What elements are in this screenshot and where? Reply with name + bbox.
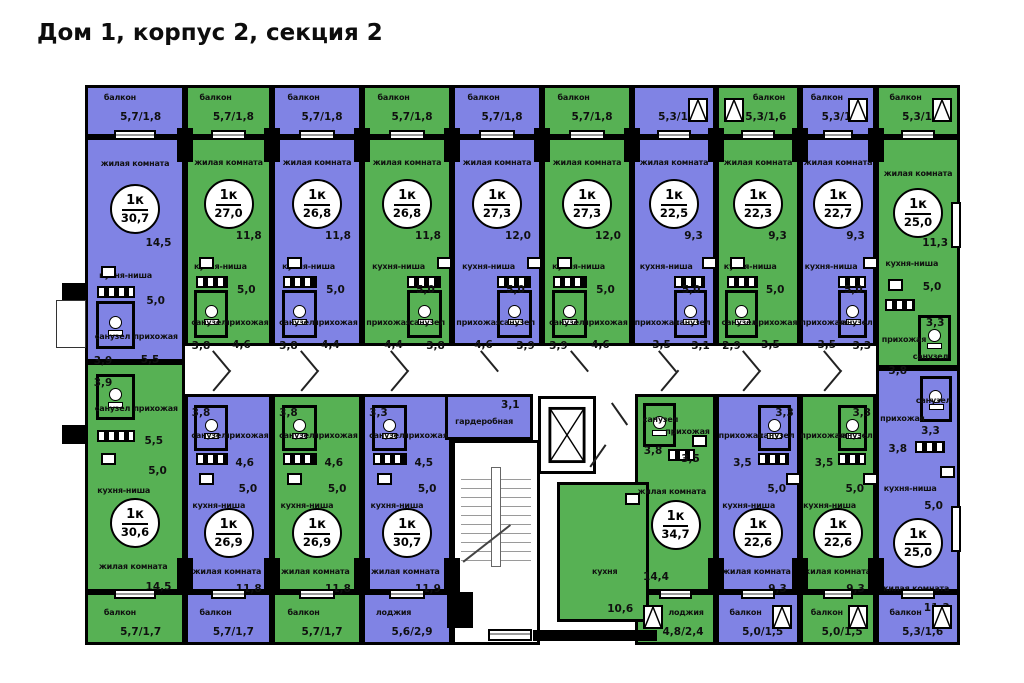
apartment-total-area: 25,0 xyxy=(904,545,932,558)
kitchen-niche-area: 5,0 xyxy=(766,284,785,296)
bathroom-walls xyxy=(282,290,317,338)
kitchen-counter xyxy=(196,453,228,465)
wall-pier xyxy=(354,558,370,594)
bathroom-label: санузел xyxy=(643,415,678,424)
hallway-label: прихожая xyxy=(456,318,500,327)
kitchen-niche-area: 5,0 xyxy=(845,483,864,495)
living-room-area: 12,0 xyxy=(595,230,621,242)
entry-door xyxy=(742,350,761,372)
apartment-total-area: 22,5 xyxy=(660,206,688,219)
casement-window-icon xyxy=(724,98,744,122)
balcony-label: балкон xyxy=(729,608,761,617)
sink-icon xyxy=(527,257,542,269)
kitchen-niche-area: 5,0 xyxy=(326,284,345,296)
apartment-badge: 1к30,6 xyxy=(110,498,160,548)
wall-pier xyxy=(708,558,724,594)
apartment-total-area: 22,7 xyxy=(824,206,852,219)
hallway-area: 3,5 xyxy=(733,457,752,469)
apartment-total-area: 30,7 xyxy=(393,535,421,548)
floor-plan: жилая комната14,5кухня-ниша5,0санузел3,9… xyxy=(0,0,1024,683)
balcony-label: лоджия xyxy=(376,608,411,617)
balcony-area: 5,3/1,6 xyxy=(745,111,786,123)
bathroom-label: санузел xyxy=(759,431,794,440)
window xyxy=(951,202,961,248)
balcony: балкон5,7/1,8 xyxy=(272,85,362,137)
wall-pier xyxy=(177,558,193,594)
sink-icon xyxy=(101,453,116,465)
apartment-total-area: 22,6 xyxy=(824,535,852,548)
balcony-label: балкон xyxy=(753,93,785,102)
casement-window-icon xyxy=(848,98,868,122)
casement-window-icon xyxy=(772,605,792,629)
window xyxy=(657,130,691,140)
apartment-bottom-6: жилая комната9,3кухня-ниша5,0санузел3,3п… xyxy=(716,394,800,592)
bathroom-label: санузел xyxy=(95,332,130,341)
balcony-label: балкон xyxy=(557,93,589,102)
wall-pier xyxy=(534,128,550,162)
apartment-top-9: жилая комната9,3кухня-ниша5,0санузел3,3п… xyxy=(800,137,876,346)
balcony-label: балкон xyxy=(287,608,319,617)
apartment-badge: 1к25,0 xyxy=(893,518,943,568)
apartment-badge: 1к26,8 xyxy=(382,179,432,229)
living-room-area: 14,5 xyxy=(146,237,172,249)
balcony: балкон5,7/1,8 xyxy=(362,85,452,137)
kitchen-counter xyxy=(373,453,407,465)
balcony: балкон5,7/1,7 xyxy=(85,592,185,645)
balcony-label: балкон xyxy=(889,93,921,102)
balcony: лоджия5,6/2,9 xyxy=(362,592,452,645)
kitchen-counter xyxy=(283,453,317,465)
living-room-label: жилая комната xyxy=(101,159,170,168)
bathroom-walls xyxy=(497,290,532,338)
bathroom-label: санузел xyxy=(409,318,444,327)
balcony-area: 5,7/1,7 xyxy=(213,626,254,638)
apartment-type: 1к xyxy=(122,194,148,211)
wall-pier xyxy=(264,128,280,162)
apartment-badge: 1к27,0 xyxy=(204,179,254,229)
sink-icon xyxy=(287,257,302,269)
kitchen-area: 10,6 xyxy=(607,603,633,615)
apartment-bottom-3: жилая комната11,8кухня-ниша5,0санузел3,8… xyxy=(272,394,362,592)
living-room-area: 11,8 xyxy=(325,230,351,242)
hallway-label: прихожая xyxy=(719,431,763,440)
living-room-label: жилая комната xyxy=(553,158,622,167)
bathroom-walls xyxy=(96,301,135,349)
apartment-total-area: 30,7 xyxy=(121,211,149,224)
balcony-label: балкон xyxy=(377,93,409,102)
living-room-label: жилая комната xyxy=(884,169,953,178)
balcony-area: 5,7/1,8 xyxy=(213,111,254,123)
window xyxy=(389,589,426,599)
kitchen-niche-area: 5,0 xyxy=(148,465,167,477)
entry-door xyxy=(611,402,628,425)
hallway-area: 5,5 xyxy=(144,435,163,447)
hallway-label: прихожая xyxy=(224,318,268,327)
apartment-total-area: 22,6 xyxy=(744,535,772,548)
living-room-area: 12,0 xyxy=(505,230,531,242)
living-room-label: жилая комната xyxy=(640,158,709,167)
bathroom-area: 3,9 xyxy=(94,355,113,367)
apartment-badge: 1к22,6 xyxy=(813,508,863,558)
kitchen-niche-label: кухня-ниша xyxy=(885,259,938,268)
balcony-area: 5,7/1,8 xyxy=(482,111,523,123)
kitchen-niche-area: 5,0 xyxy=(416,284,435,296)
kitchen-niche-area: 5,0 xyxy=(506,284,525,296)
bathroom-area: 3,3 xyxy=(369,407,388,419)
sink-icon xyxy=(863,473,878,485)
bathroom-walls xyxy=(194,290,228,338)
balcony: балкон5,7/1,8 xyxy=(85,85,185,137)
balcony-area: 5,7/1,8 xyxy=(302,111,343,123)
balcony: балкон5,3/1,6 xyxy=(876,592,960,645)
wall-pier xyxy=(444,558,460,594)
living-room-label: жилая комната xyxy=(194,158,263,167)
hallway-label: прихожая xyxy=(313,431,357,440)
living-room-label: жилая комната xyxy=(637,487,706,496)
hallway-label: прихожая xyxy=(635,318,679,327)
hallway-label: прихожая xyxy=(403,431,447,440)
bathroom-label: санузел xyxy=(913,352,948,361)
sink-icon xyxy=(101,266,116,278)
bathroom-walls xyxy=(643,403,676,447)
apartment-type: 1к xyxy=(304,518,330,535)
apartment-top-4: жилая комната11,8кухня-ниша5,0санузел3,8… xyxy=(362,137,452,346)
balcony-area: 5,6/2,9 xyxy=(392,626,433,638)
wall-pier xyxy=(868,128,884,162)
bathroom-label: санузел xyxy=(549,318,584,327)
apartment-badge: 1к22,7 xyxy=(813,179,863,229)
hallway-label: прихожая xyxy=(313,318,357,327)
wardrobe-label: гардеробная xyxy=(455,417,513,426)
living-room-label: жилая комната xyxy=(802,567,871,576)
apartment-badge: 1к25,0 xyxy=(893,188,943,238)
apartment-top-5: жилая комната12,0кухня-ниша5,0санузел3,9… xyxy=(452,137,542,346)
balcony: балкон5,7/1,8 xyxy=(185,85,272,137)
bathroom-label: санузел xyxy=(722,318,757,327)
bathroom-walls xyxy=(552,290,587,338)
living-room-label: жилая комната xyxy=(724,158,793,167)
kitchen-niche-label: кухня-ниша xyxy=(640,262,693,271)
window xyxy=(823,589,854,599)
balcony: 5,3/1,6 xyxy=(632,85,716,137)
apartment-top-6: жилая комната12,0кухня-ниша5,0санузел3,9… xyxy=(542,137,632,346)
bathroom-area: 3,8 xyxy=(192,407,211,419)
living-room-area: 9,3 xyxy=(684,230,703,242)
kitchen-counter xyxy=(758,453,789,465)
apartment-total-area: 27,0 xyxy=(214,206,242,219)
balcony-label: балкон xyxy=(811,608,843,617)
sink-icon xyxy=(702,257,717,269)
hallway-area: 3,5 xyxy=(815,457,834,469)
apartment-total-area: 30,6 xyxy=(121,525,149,538)
bathroom-label: санузел xyxy=(191,431,226,440)
wall-pier xyxy=(624,128,640,162)
living-room-area: 14,4 xyxy=(643,571,669,583)
bathroom-walls xyxy=(407,290,442,338)
hallway-area: 3,8 xyxy=(888,365,907,377)
wall-pier xyxy=(62,283,86,300)
casement-window-icon xyxy=(643,605,663,629)
apartment-badge: 1к30,7 xyxy=(110,184,160,234)
bathroom-area: 3,8 xyxy=(426,340,445,352)
window xyxy=(569,130,606,140)
hallway-label: прихожая xyxy=(366,318,410,327)
kitchen-niche-label: кухня-ниша xyxy=(884,484,937,493)
kitchen-niche-area: 5,0 xyxy=(923,281,942,293)
hallway-area: 4,4 xyxy=(321,339,340,351)
wall-pier xyxy=(792,558,808,594)
bathroom-area: 3,8 xyxy=(644,445,663,457)
hallway-label: прихожая xyxy=(800,318,844,327)
entry-door xyxy=(212,350,231,372)
living-room-area: 9,3 xyxy=(768,230,787,242)
sink-icon xyxy=(888,279,903,291)
living-room-label: жилая комната xyxy=(371,567,440,576)
hallway-area: 4,6 xyxy=(232,339,251,351)
kitchen-counter xyxy=(885,299,915,311)
balcony: балкон5,0/1,5 xyxy=(800,592,876,645)
hallway-area: 3,5 xyxy=(681,453,700,465)
apartment-top-2: жилая комната11,8кухня-ниша5,0санузел3,8… xyxy=(185,137,272,346)
kitchen-counter xyxy=(727,276,758,288)
balcony-area: 5,7/1,8 xyxy=(120,111,161,123)
bathroom-area: 3,3 xyxy=(921,425,940,437)
apartment-total-area: 25,0 xyxy=(904,215,932,228)
bathroom-walls xyxy=(838,290,867,338)
kitchen-niche-area: 5,0 xyxy=(767,483,786,495)
apartment-type: 1к xyxy=(825,518,851,535)
window xyxy=(114,589,155,599)
sink-icon xyxy=(287,473,302,485)
kitchen-counter xyxy=(196,276,228,288)
apartment-total-area: 26,9 xyxy=(303,535,331,548)
balcony-area: 4,8/2,4 xyxy=(662,626,703,638)
wardrobe-area: 3,1 xyxy=(501,399,520,411)
toilet-icon xyxy=(927,329,941,347)
balcony: балкон5,3/1,6 xyxy=(716,85,800,137)
apartment-total-area: 27,3 xyxy=(573,206,601,219)
apartment-badge: 1к34,7 xyxy=(651,500,701,550)
apartment-total-area: 26,9 xyxy=(214,535,242,548)
apartment-type: 1к xyxy=(661,189,687,206)
kitchen-niche-area: 5,0 xyxy=(239,483,258,495)
window xyxy=(901,130,935,140)
apartment-type: 1к xyxy=(484,189,510,206)
hallway-area: 3,5 xyxy=(652,339,671,351)
kitchen-counter xyxy=(97,430,135,442)
apartment-total-area: 34,7 xyxy=(661,527,689,540)
balcony-area: 5,7/1,8 xyxy=(392,111,433,123)
bathroom-area: 2,9 xyxy=(722,340,741,352)
window xyxy=(389,130,426,140)
apartment-type: 1к xyxy=(745,518,771,535)
bathroom-area: 3,3 xyxy=(852,340,871,352)
apartment-type: 1к xyxy=(394,189,420,206)
kitchen-niche-area: 5,0 xyxy=(596,284,615,296)
apartment-bottom-2: жилая комната11,8кухня-ниша5,0санузел3,8… xyxy=(185,394,272,592)
balcony: балкон5,3/1,6 xyxy=(876,85,960,137)
entry-door xyxy=(658,350,677,372)
sink-icon xyxy=(437,257,452,269)
balcony: балкон5,7/1,8 xyxy=(452,85,542,137)
apartment-badge: 1к30,7 xyxy=(382,508,432,558)
hallway-label: прихожая xyxy=(880,414,924,423)
wall-pier xyxy=(264,558,280,594)
wall-pier xyxy=(792,128,808,162)
elevator xyxy=(538,396,596,474)
bathroom-label: санузел xyxy=(279,318,314,327)
entry-door xyxy=(212,370,231,392)
sink-icon xyxy=(863,257,878,269)
kitchen-counter xyxy=(553,276,587,288)
balcony-label: балкон xyxy=(199,608,231,617)
apartment-type: 1к xyxy=(905,198,931,215)
kitchen-niche-area: 5,0 xyxy=(328,483,347,495)
hallway-area: 4,6 xyxy=(324,457,343,469)
entry-door xyxy=(742,370,761,392)
kitchen-niche-label: кухня-ниша xyxy=(372,262,425,271)
entry-door xyxy=(570,350,589,372)
kitchen-niche-area: 5,0 xyxy=(682,284,701,296)
balcony-label: балкон xyxy=(889,608,921,617)
kitchen-niche-label: кухня-ниша xyxy=(805,262,858,271)
apartment-bottom-1: жилая комната14,5кухня-ниша5,0санузел3,9… xyxy=(85,362,185,592)
hallway-label: прихожая xyxy=(583,318,627,327)
hallway-label: прихожая xyxy=(882,335,926,344)
apartment-total-area: 26,8 xyxy=(303,206,331,219)
sink-icon xyxy=(940,466,955,478)
apartment-type: 1к xyxy=(216,518,242,535)
hallway-label: прихожая xyxy=(133,332,177,341)
casement-window-icon xyxy=(932,98,952,122)
apartment-type: 1к xyxy=(216,189,242,206)
window xyxy=(299,130,336,140)
living-room-label: жилая комната xyxy=(463,158,532,167)
hallway-label: прихожая xyxy=(133,404,177,413)
stairs-stringer xyxy=(491,467,501,567)
window xyxy=(211,589,247,599)
apartment-total-area: 27,3 xyxy=(483,206,511,219)
wall-pier xyxy=(868,558,884,594)
hallway-label: прихожая xyxy=(800,431,844,440)
window xyxy=(479,130,516,140)
window xyxy=(488,629,532,641)
apartment-type: 1к xyxy=(663,510,689,527)
bathroom-label: санузел xyxy=(499,318,534,327)
sink-icon xyxy=(377,473,392,485)
balcony: балкон5,7/1,7 xyxy=(185,592,272,645)
bathroom-label: санузел xyxy=(279,431,314,440)
bathroom-walls xyxy=(674,290,707,338)
wall-pier xyxy=(447,592,473,628)
apartment-top-7: жилая комната9,3кухня-ниша5,0санузел3,1п… xyxy=(632,137,716,346)
living-room-label: жилая комната xyxy=(373,158,442,167)
window xyxy=(659,589,692,599)
bottom-wall xyxy=(533,630,657,641)
bathroom-area: 3,3 xyxy=(775,407,794,419)
living-room-area: 9,3 xyxy=(846,230,865,242)
hallway-label: прихожая xyxy=(753,318,797,327)
kitchen-niche-area: 5,0 xyxy=(237,284,256,296)
apartment-total-area: 26,8 xyxy=(393,206,421,219)
window xyxy=(823,130,854,140)
kitchen-niche-area: 5,0 xyxy=(418,483,437,495)
sink-icon xyxy=(199,257,214,269)
apartment-top-3: жилая комната11,8кухня-ниша5,0санузел3,8… xyxy=(272,137,362,346)
balcony-label: балкон xyxy=(199,93,231,102)
apartment-badge: 1к26,9 xyxy=(204,508,254,558)
apartment-total-area: 22,3 xyxy=(744,206,772,219)
kitchen-niche-area: 5,0 xyxy=(844,284,863,296)
bathroom-area: 3,9 xyxy=(516,340,535,352)
floor-plan-page: Дом 1, корпус 2, секция 2 жилая комната1… xyxy=(0,0,1024,683)
apartment-badge: 1к27,3 xyxy=(472,179,522,229)
apartment-badge: 1к26,9 xyxy=(292,508,342,558)
casement-window-icon xyxy=(848,605,868,629)
entry-door xyxy=(824,370,843,392)
kitchen-niche-label: кухня-ниша xyxy=(462,262,515,271)
apartment-bottom-8: жилая комната11,3кухня-ниша5,0санузел3,3… xyxy=(876,368,960,592)
apartment-type: 1к xyxy=(745,189,771,206)
apartment-badge: 1к26,8 xyxy=(292,179,342,229)
apartment-bottom-7: жилая комната9,3кухня-ниша5,0санузел3,3п… xyxy=(800,394,876,592)
apartment-top-10: жилая комната11,3кухня-ниша5,0санузел3,3… xyxy=(876,137,960,368)
entry-door xyxy=(390,370,409,392)
bathroom-label: санузел xyxy=(369,431,404,440)
hallway-area: 3,5 xyxy=(761,339,780,351)
balcony-label: балкон xyxy=(104,93,136,102)
kitchen-counter xyxy=(838,453,866,465)
balcony-label: балкон xyxy=(467,93,499,102)
apartment-badge: 1к27,3 xyxy=(562,179,612,229)
living-room-area: 11,8 xyxy=(415,230,441,242)
balcony-label: балкон xyxy=(104,608,136,617)
bathroom-walls xyxy=(725,290,758,338)
window xyxy=(114,130,155,140)
wall-pier xyxy=(354,128,370,162)
bathroom-label: санузел xyxy=(95,404,130,413)
window xyxy=(741,589,775,599)
kitchen-counter xyxy=(915,441,945,453)
sink-icon xyxy=(730,257,745,269)
living-room-label: жилая комната xyxy=(804,158,873,167)
balcony: балкон5,0/1,5 xyxy=(716,592,800,645)
balcony-area: 5,7/1,8 xyxy=(572,111,613,123)
wall-pier xyxy=(444,128,460,162)
living-room-label: жилая комната xyxy=(283,158,352,167)
hallway-area: 3,5 xyxy=(817,339,836,351)
french-balcony xyxy=(56,300,86,348)
apartment-badge: 1к22,5 xyxy=(649,179,699,229)
casement-window-icon xyxy=(688,98,708,122)
hallway-area: 4,6 xyxy=(235,457,254,469)
hallway-area: 4,6 xyxy=(591,339,610,351)
apartment-badge: 1к22,3 xyxy=(733,179,783,229)
living-room-area: 11,8 xyxy=(236,230,262,242)
window xyxy=(299,589,336,599)
bathroom-area: 3,8 xyxy=(192,340,211,352)
kitchen-block: кухня10,6 xyxy=(557,482,649,622)
bathroom-area: 3,9 xyxy=(94,377,113,389)
living-room-label: жилая комната xyxy=(193,567,262,576)
bathroom-area: 3,9 xyxy=(549,340,568,352)
kitchen-label: кухня xyxy=(592,567,617,576)
sink-icon xyxy=(692,435,707,447)
apartment-type: 1к xyxy=(825,189,851,206)
sink-icon xyxy=(199,473,214,485)
entry-door xyxy=(300,370,319,392)
living-room-label: жилая комната xyxy=(281,567,350,576)
